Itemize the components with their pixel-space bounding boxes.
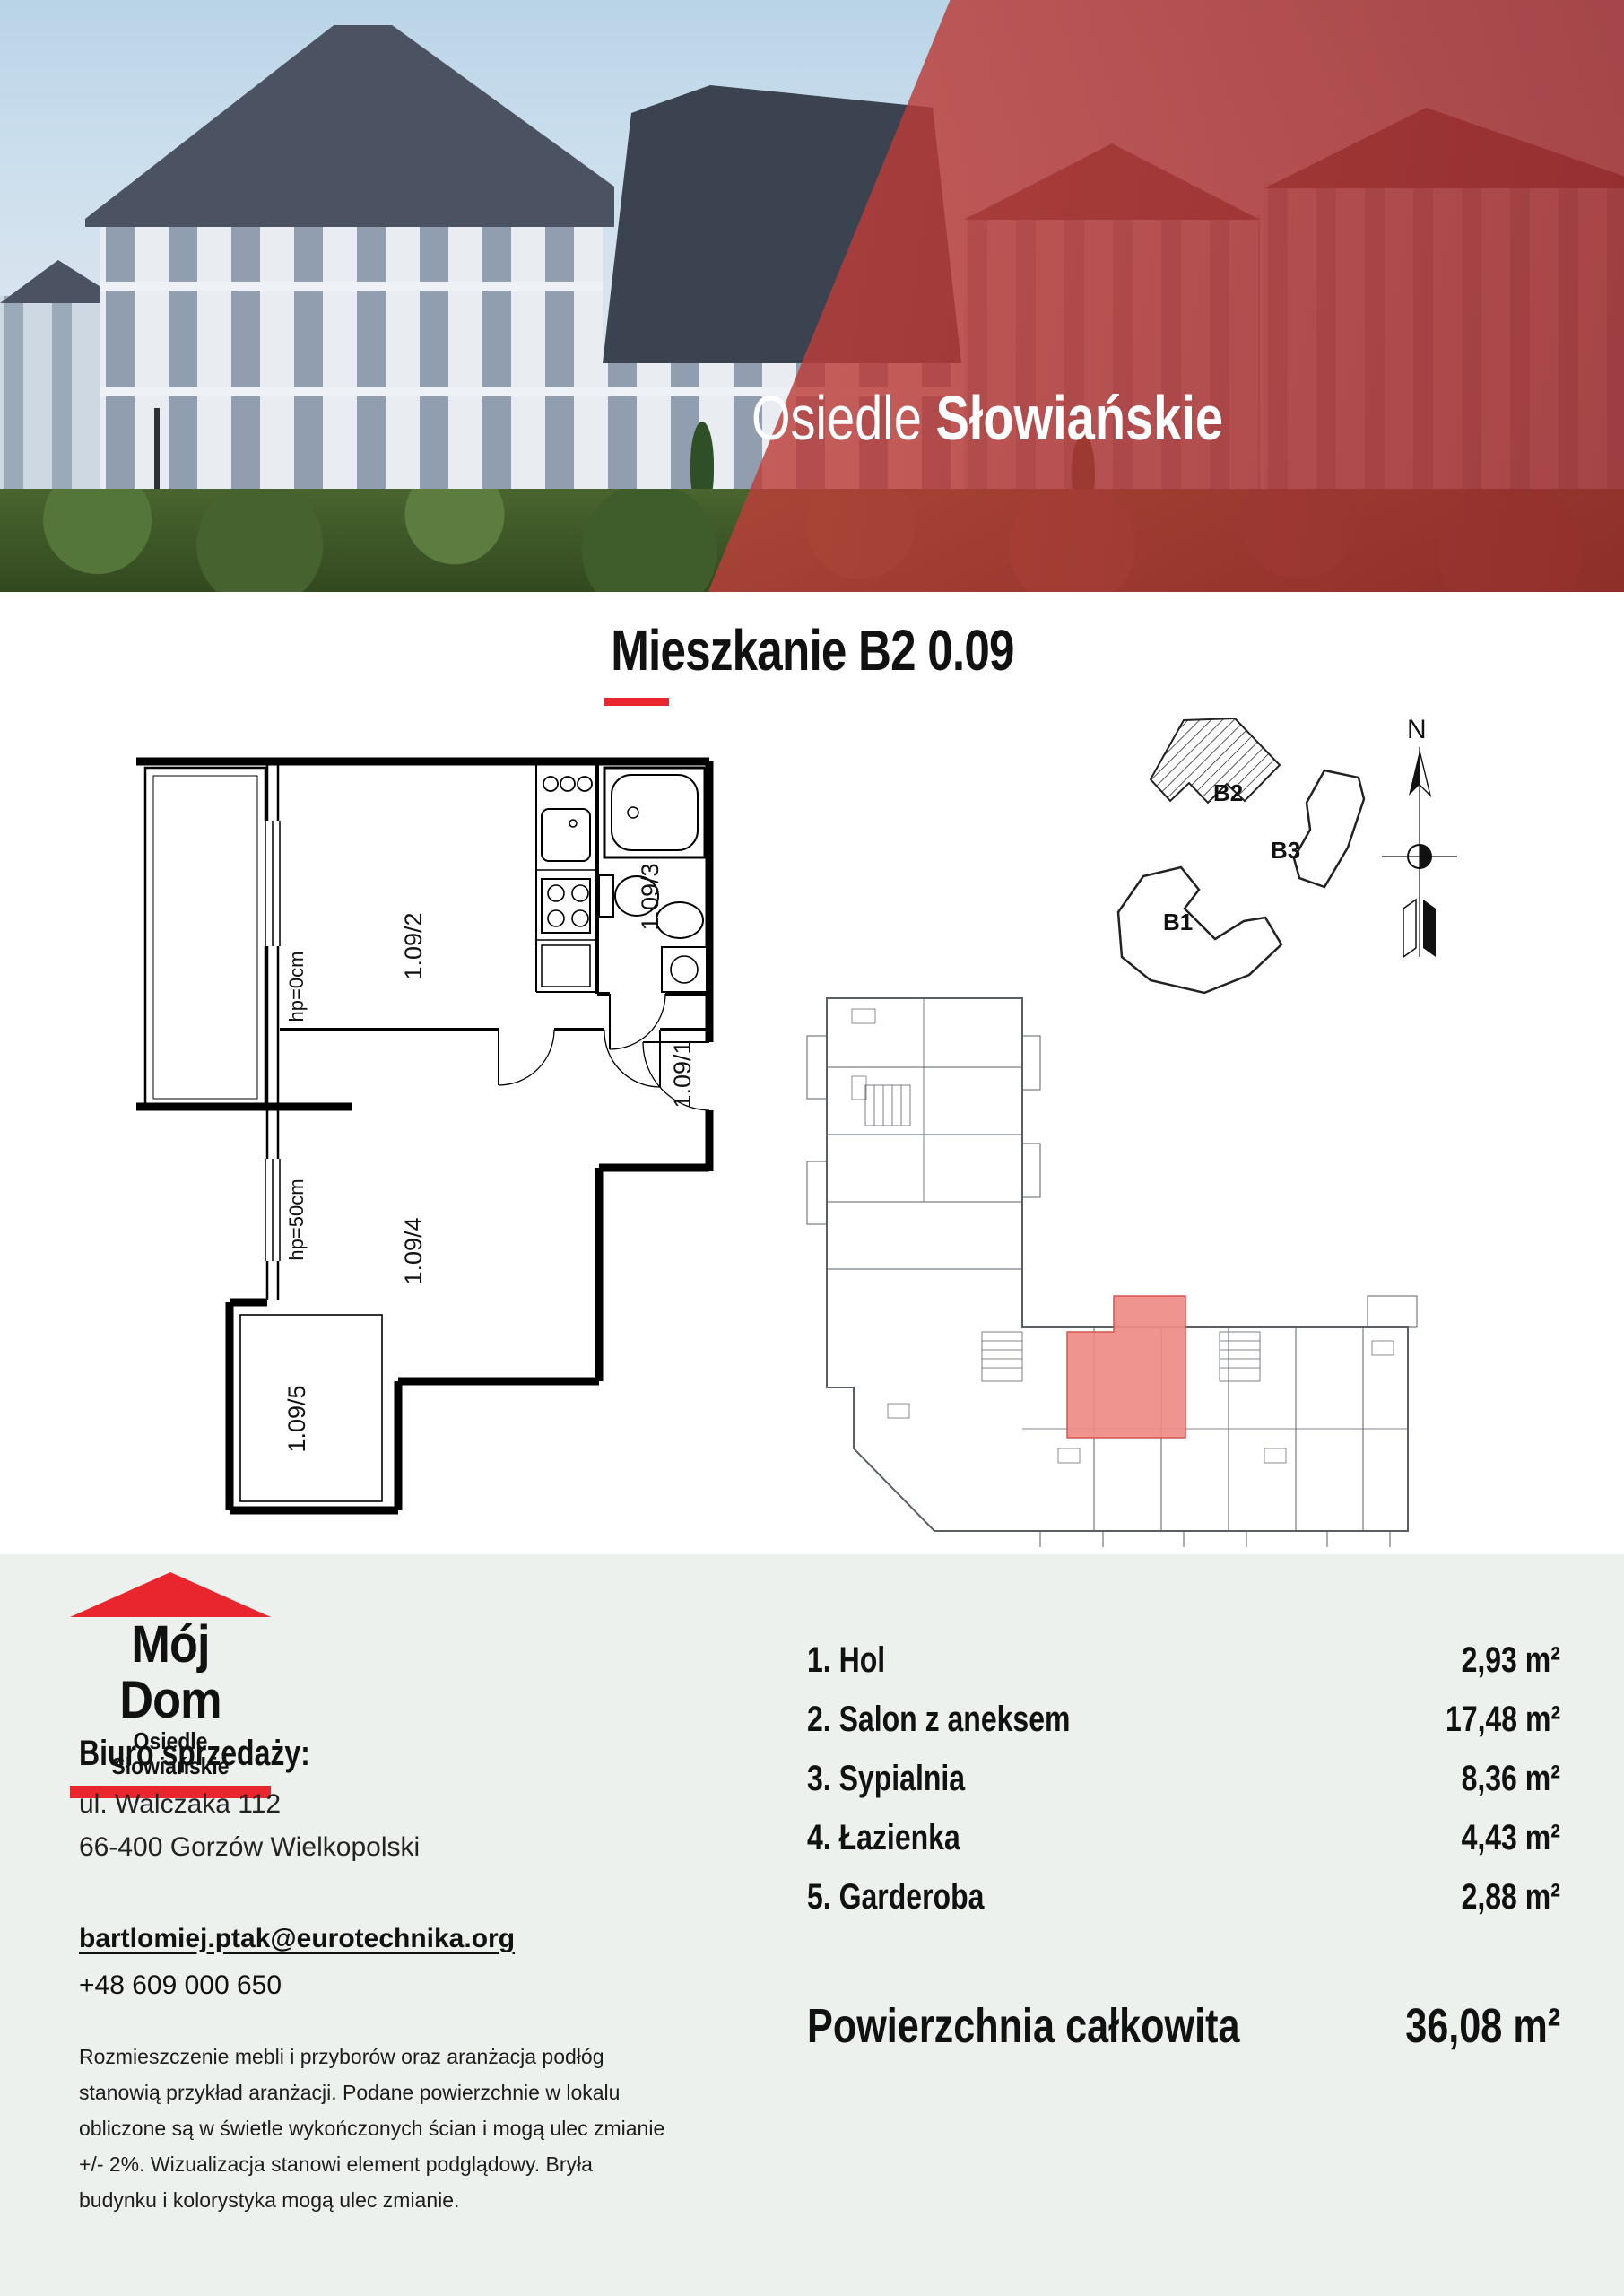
phone-number: +48 609 000 650 [79,1970,282,2001]
room-label: 3. Sypialnia [807,1759,965,1799]
building-b2-label: B2 [1213,779,1243,806]
room-area: 17,48 m² [1446,1700,1560,1740]
total-area-label: Powierzchnia całkowita [807,1998,1240,2054]
disclaimer-line: +/- 2%. Wizualizacja stanowi element pod… [79,2146,664,2182]
apartment-floor-plan: 1.09/2 hp=0cm 1.09/3 1.09/1 1.09/4 hp=50… [126,753,717,1543]
hero-title-regular: Osiedle [751,383,922,453]
room-area: 2,93 m² [1462,1640,1560,1681]
room-label: 1. Hol [807,1640,885,1681]
highlighted-unit [1067,1296,1185,1438]
page-title: Mieszkanie B2 0.09 [611,617,1014,683]
building-b3-label: B3 [1271,837,1300,864]
room-label: 4. Łazienka [807,1818,960,1858]
page-title-wrap: Mieszkanie B2 0.09 [0,617,1624,683]
room-area: 2,88 m² [1462,1877,1560,1918]
room-row: 4. Łazienka 4,43 m² [807,1808,1560,1867]
hero-title: Osiedle Słowiańskie [751,384,1342,453]
building-b3-footprint [1294,770,1364,887]
room-label: 2. Salon z aneksem [807,1700,1070,1740]
room-row: 5. Garderoba 2,88 m² [807,1867,1560,1926]
site-plan: B2 B3 B1 N [1099,695,1610,1009]
disclaimer-line: budynku i kolorystyka mogą ulec zmianie. [79,2182,664,2218]
email-link[interactable]: bartlomiej.ptak@eurotechnika.org [79,1924,515,1954]
compass-north-label: N [1407,715,1427,744]
room-label: 5. Garderoba [807,1877,984,1918]
logo-name: Mój Dom [80,1617,261,1728]
building-b1-label: B1 [1163,909,1193,935]
title-underline [604,698,669,706]
compass-icon: N [1382,715,1457,957]
logo-roof-icon [70,1572,271,1617]
building-overview-plan [798,982,1444,1547]
room-area: 8,36 m² [1462,1759,1560,1799]
room-label-garderoba: 1.09/5 [283,1385,310,1452]
disclaimer-line: Rozmieszczenie mebli i przyborów oraz ar… [79,2039,664,2074]
hero-building-far-left [0,296,103,502]
sill-label-salon: hp=0cm [285,952,308,1022]
total-area-value: 36,08 m² [1405,1998,1560,2054]
room-row: 3. Sypialnia 8,36 m² [807,1749,1560,1808]
address-line-2: 66-400 Gorzów Wielkopolski [79,1832,420,1863]
hero-building-main [100,220,603,502]
room-row: 2. Salon z aneksem 17,48 m² [807,1690,1560,1749]
sales-office-heading: Biuro sprzedaży: [79,1734,368,1774]
room-label-bathroom: 1.09/3 [637,863,664,930]
hero-roof-main [85,25,614,227]
room-label-salon: 1.09/2 [400,912,427,979]
room-label-bedroom: 1.09/4 [400,1217,427,1284]
building-b1-footprint [1118,867,1281,993]
disclaimer-text: Rozmieszczenie mebli i przyborów oraz ar… [79,2039,664,2218]
room-label-hall: 1.09/1 [669,1040,696,1108]
sill-label-bedroom: hp=50cm [285,1178,308,1260]
bottom-section: Mój Dom Osiedle Słowiańskie Biuro sprzed… [0,1554,1624,2296]
hero-title-bold: Słowiańskie [935,383,1223,453]
hero-roof-far-left [0,260,106,303]
disclaimer-line: obliczone są w świetle wykończonych ścia… [79,2110,664,2146]
total-area-row: Powierzchnia całkowita 36,08 m² [807,1998,1560,2054]
hero-image: Osiedle Słowiańskie [0,0,1624,592]
room-area: 4,43 m² [1462,1818,1560,1858]
room-list: 1. Hol 2,93 m² 2. Salon z aneksem 17,48 … [807,1631,1560,1926]
disclaimer-line: stanowią przykład aranżacji. Podane powi… [79,2074,664,2110]
address-line-1: ul. Walczaka 112 [79,1789,281,1820]
room-row: 1. Hol 2,93 m² [807,1631,1560,1690]
